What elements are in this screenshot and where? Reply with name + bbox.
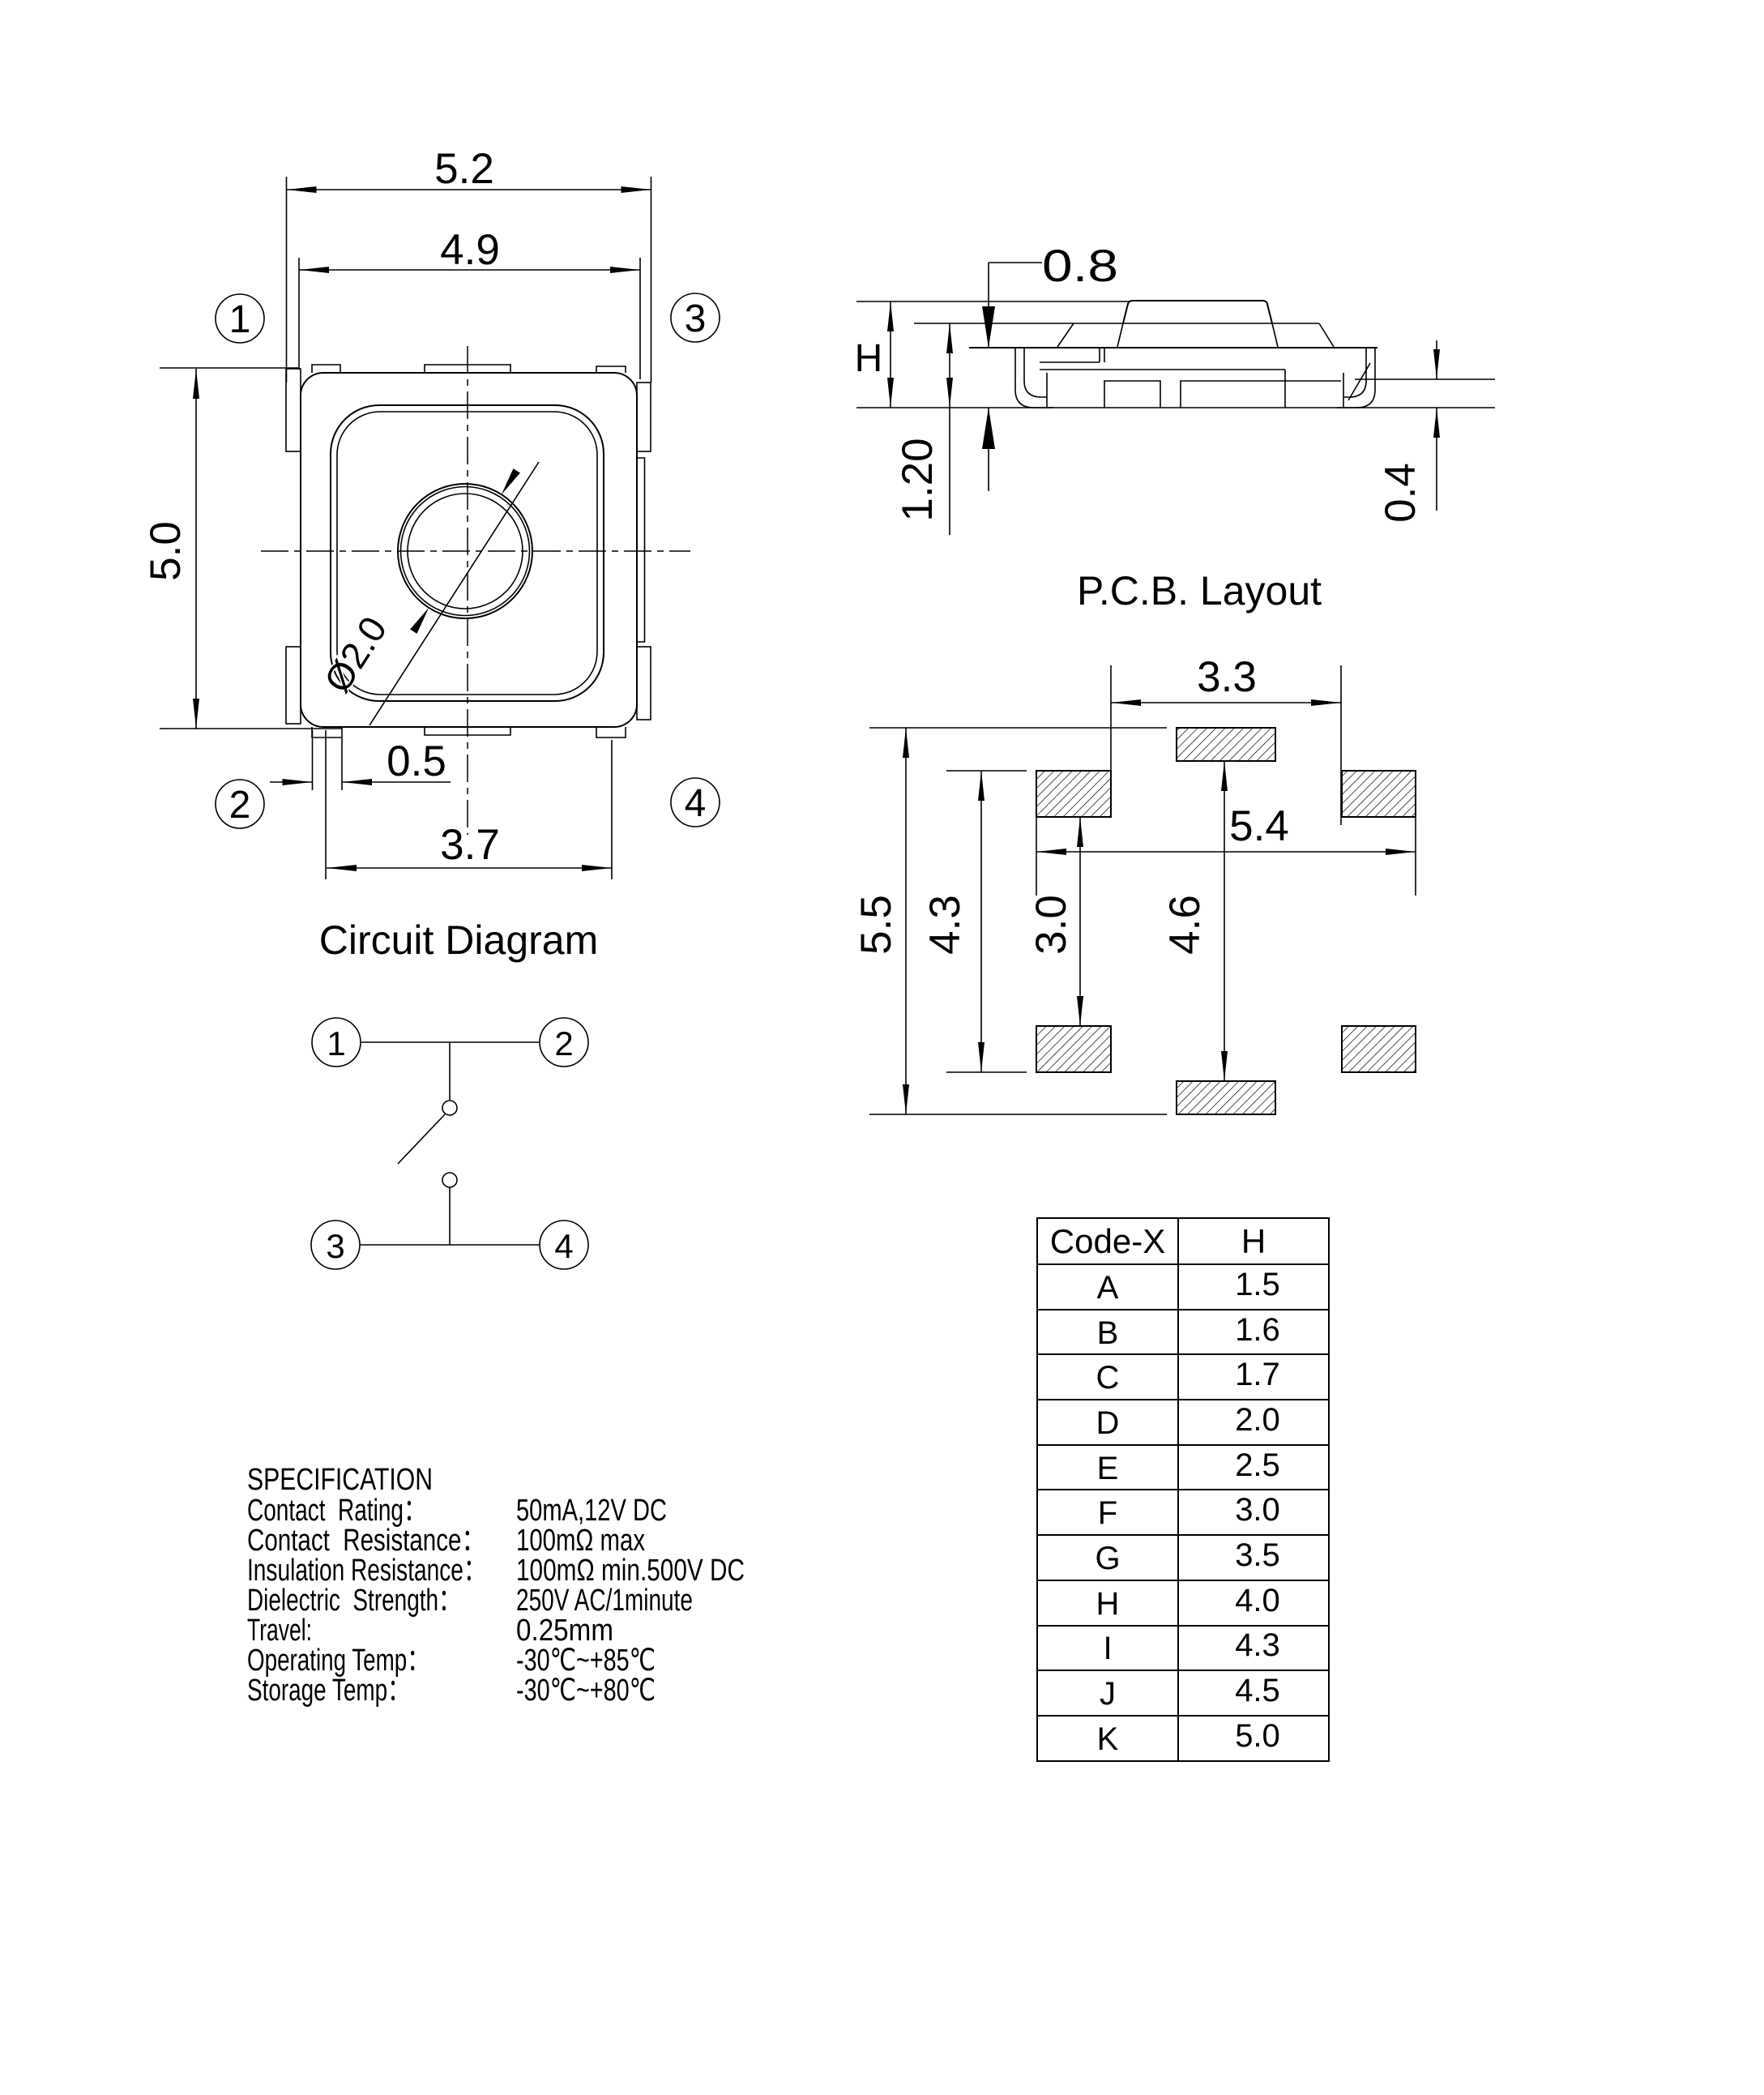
svg-text:P.C.B. Layout: P.C.B. Layout <box>1077 568 1322 614</box>
svg-text:H: H <box>855 337 883 380</box>
svg-text:H: H <box>1241 1222 1266 1260</box>
svg-text:3: 3 <box>685 297 707 340</box>
svg-text:4.3: 4.3 <box>1235 1627 1280 1663</box>
svg-text:0.25mm: 0.25mm <box>516 1614 613 1648</box>
svg-text:-30℃~+80℃: -30℃~+80℃ <box>516 1674 656 1708</box>
svg-text:E: E <box>1097 1451 1119 1486</box>
svg-text:4.9: 4.9 <box>440 226 500 274</box>
svg-text:100mΩ min.500V DC: 100mΩ min.500V DC <box>516 1554 745 1588</box>
svg-text:100mΩ max: 100mΩ max <box>516 1524 645 1558</box>
svg-text:1.7: 1.7 <box>1235 1357 1280 1392</box>
svg-text:4.5: 4.5 <box>1235 1673 1280 1708</box>
svg-text:Dielectric Strength：: Dielectric Strength： <box>247 1584 461 1618</box>
svg-text:2: 2 <box>229 784 251 827</box>
svg-text:250V AC/1minute: 250V AC/1minute <box>516 1584 693 1618</box>
svg-text:1: 1 <box>229 298 251 341</box>
svg-text:F: F <box>1098 1495 1117 1531</box>
svg-text:5.2: 5.2 <box>434 145 494 193</box>
svg-text:3.7: 3.7 <box>440 821 500 869</box>
svg-text:Travel:: Travel: <box>247 1614 312 1648</box>
svg-text:1.6: 1.6 <box>1235 1312 1280 1348</box>
svg-text:4.3: 4.3 <box>921 895 969 955</box>
svg-text:Storage Temp：: Storage Temp： <box>247 1674 410 1708</box>
svg-text:C: C <box>1096 1360 1120 1396</box>
svg-text:H: H <box>1096 1586 1120 1622</box>
svg-text:1.5: 1.5 <box>1235 1267 1280 1302</box>
svg-text:B: B <box>1097 1315 1119 1351</box>
svg-text:4.6: 4.6 <box>1161 895 1209 955</box>
svg-text:Circuit Diagram: Circuit Diagram <box>319 917 599 963</box>
svg-text:3.0: 3.0 <box>1235 1492 1280 1528</box>
svg-text:J: J <box>1100 1676 1116 1712</box>
svg-text:Contact Resistance：: Contact Resistance： <box>247 1524 485 1558</box>
svg-text:Operating Temp：: Operating Temp： <box>247 1644 429 1678</box>
svg-text:2.5: 2.5 <box>1235 1447 1280 1483</box>
svg-text:2.0: 2.0 <box>1235 1402 1280 1438</box>
svg-text:-30℃~+85℃: -30℃~+85℃ <box>516 1644 656 1678</box>
svg-text:D: D <box>1096 1405 1120 1441</box>
svg-text:Contact Rating：: Contact Rating： <box>247 1494 426 1528</box>
svg-text:2: 2 <box>554 1024 573 1062</box>
svg-text:4: 4 <box>685 782 707 825</box>
svg-text:0.5: 0.5 <box>387 738 446 785</box>
svg-text:3.5: 3.5 <box>1235 1537 1280 1573</box>
svg-text:Code-X: Code-X <box>1050 1222 1165 1260</box>
svg-text:3: 3 <box>326 1227 344 1265</box>
svg-text:0.8: 0.8 <box>1042 240 1118 291</box>
svg-text:50mA,12V DC: 50mA,12V DC <box>516 1494 667 1528</box>
svg-text:3.3: 3.3 <box>1197 653 1257 701</box>
svg-text:Insulation Resistance：: Insulation Resistance： <box>247 1554 486 1588</box>
svg-text:5.0: 5.0 <box>142 521 190 581</box>
svg-text:5.0: 5.0 <box>1235 1718 1280 1754</box>
svg-text:G: G <box>1095 1541 1120 1576</box>
svg-text:A: A <box>1097 1270 1119 1306</box>
svg-text:1.20: 1.20 <box>894 438 942 521</box>
svg-text:5.5: 5.5 <box>852 895 900 955</box>
svg-text:5.4: 5.4 <box>1229 802 1289 850</box>
svg-text:3.0: 3.0 <box>1027 895 1075 955</box>
svg-text:1: 1 <box>327 1024 345 1062</box>
svg-text:0.4: 0.4 <box>1377 463 1424 523</box>
svg-text:K: K <box>1097 1721 1119 1757</box>
svg-text:SPECIFICATION: SPECIFICATION <box>247 1463 433 1497</box>
svg-text:4: 4 <box>554 1227 573 1265</box>
svg-text:4.0: 4.0 <box>1235 1583 1280 1618</box>
svg-text:I: I <box>1103 1631 1112 1666</box>
